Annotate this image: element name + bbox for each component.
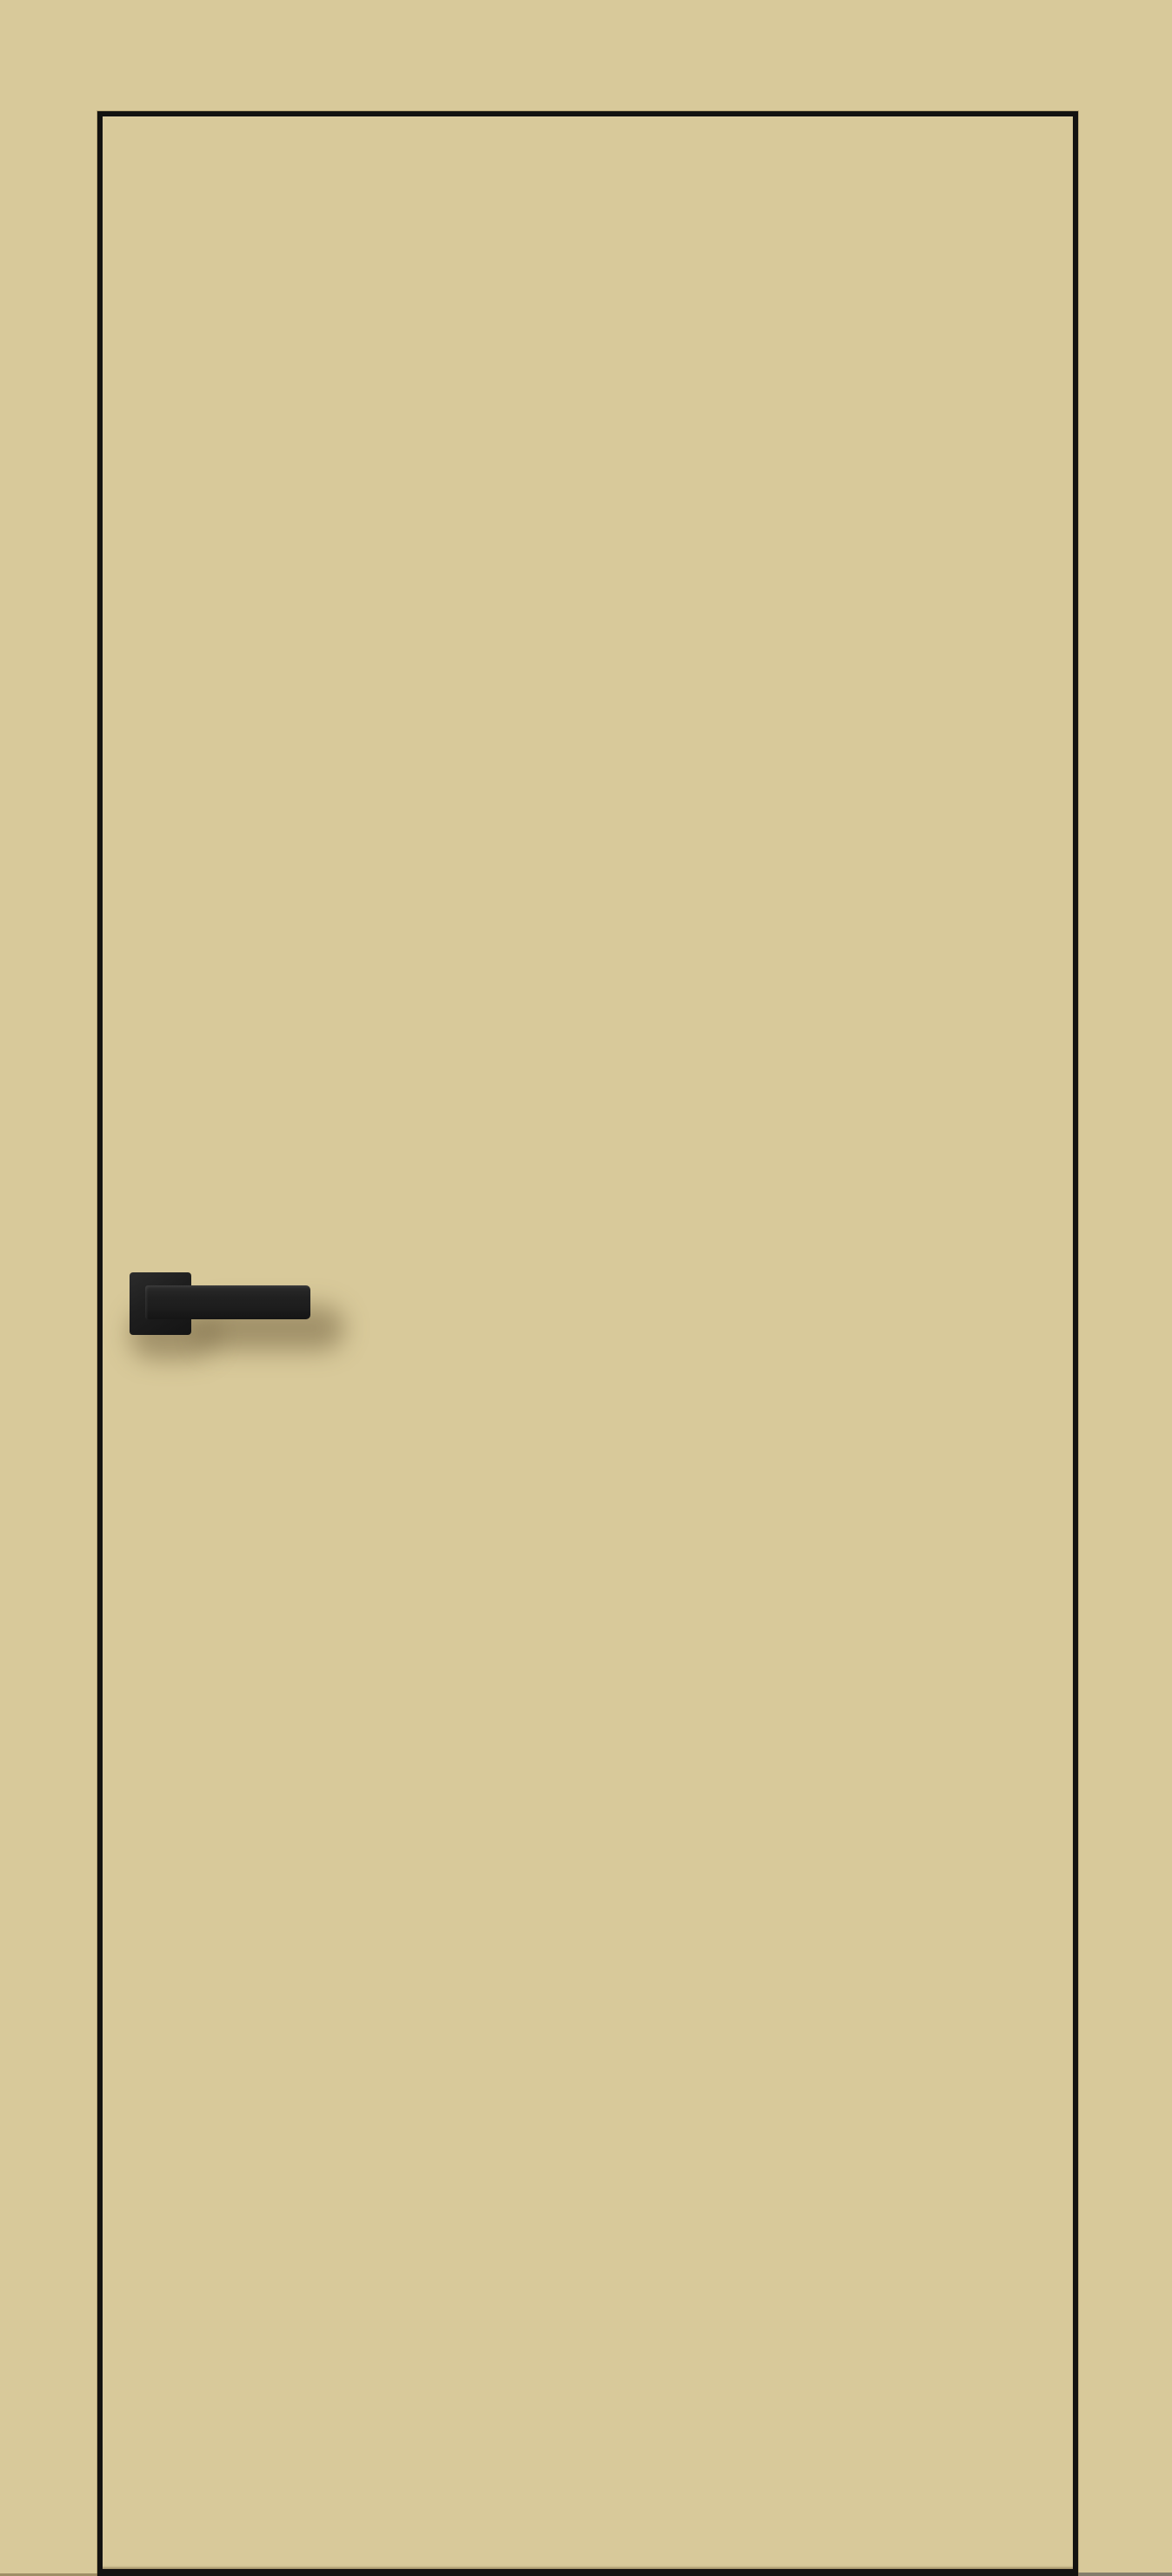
door-product-photo — [0, 0, 1172, 2576]
handle-lever — [145, 1285, 310, 1319]
floor-shadow-right — [1078, 2573, 1172, 2576]
